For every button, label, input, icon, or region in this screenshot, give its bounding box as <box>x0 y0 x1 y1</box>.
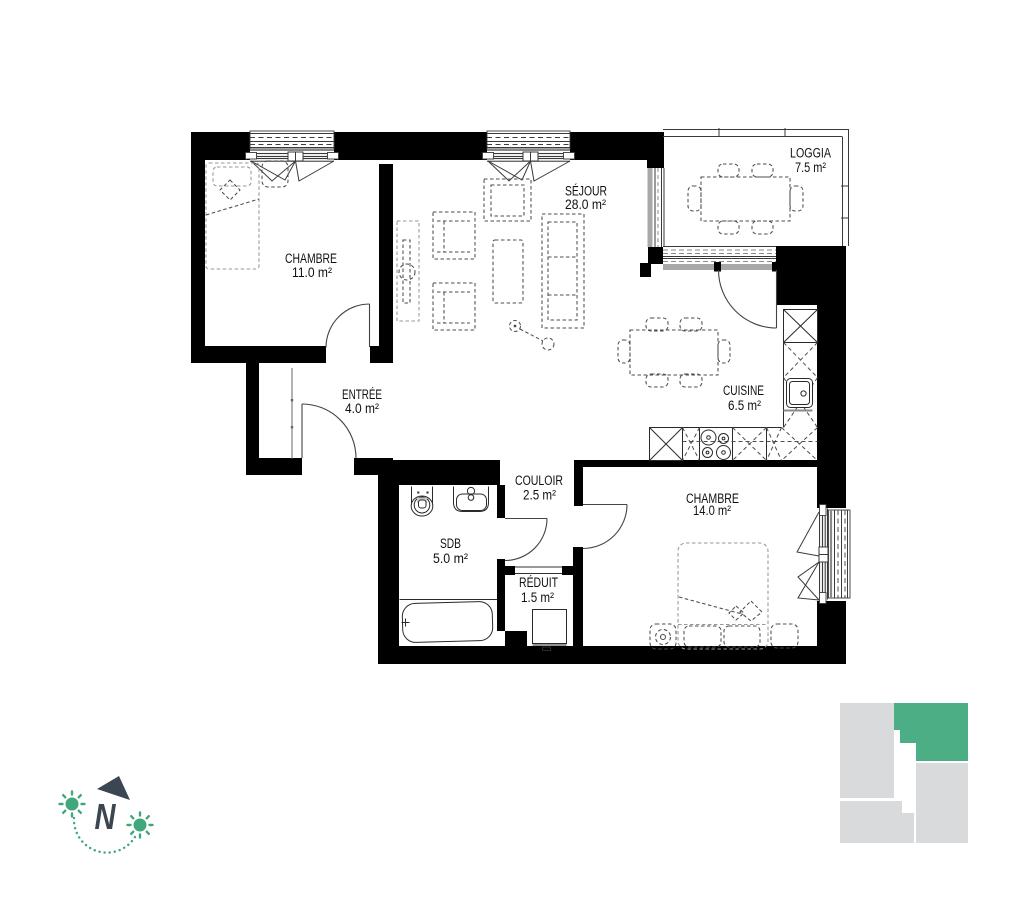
svg-text:2.5 m²: 2.5 m² <box>523 488 556 503</box>
svg-text:RÉDUIT: RÉDUIT <box>519 575 558 590</box>
svg-text:1.5 m²: 1.5 m² <box>521 590 554 605</box>
svg-text:14.0 m²: 14.0 m² <box>693 503 731 518</box>
svg-text:SDB: SDB <box>440 536 461 551</box>
svg-text:CUISINE: CUISINE <box>723 383 764 398</box>
svg-text:5.0 m²: 5.0 m² <box>433 551 468 566</box>
svg-text:COULOIR: COULOIR <box>515 473 563 488</box>
svg-text:28.0 m²: 28.0 m² <box>565 197 606 212</box>
svg-text:ENTRÉE: ENTRÉE <box>342 387 382 402</box>
svg-text:CHAMBRE: CHAMBRE <box>285 251 337 266</box>
svg-text:6.5 m²: 6.5 m² <box>728 398 761 413</box>
svg-text:11.0 m²: 11.0 m² <box>292 265 332 280</box>
svg-text:4.0 m²: 4.0 m² <box>345 401 379 416</box>
svg-text:N: N <box>95 796 117 837</box>
svg-text:7.5 m²: 7.5 m² <box>795 160 826 175</box>
svg-text:LOGGIA: LOGGIA <box>790 146 831 161</box>
